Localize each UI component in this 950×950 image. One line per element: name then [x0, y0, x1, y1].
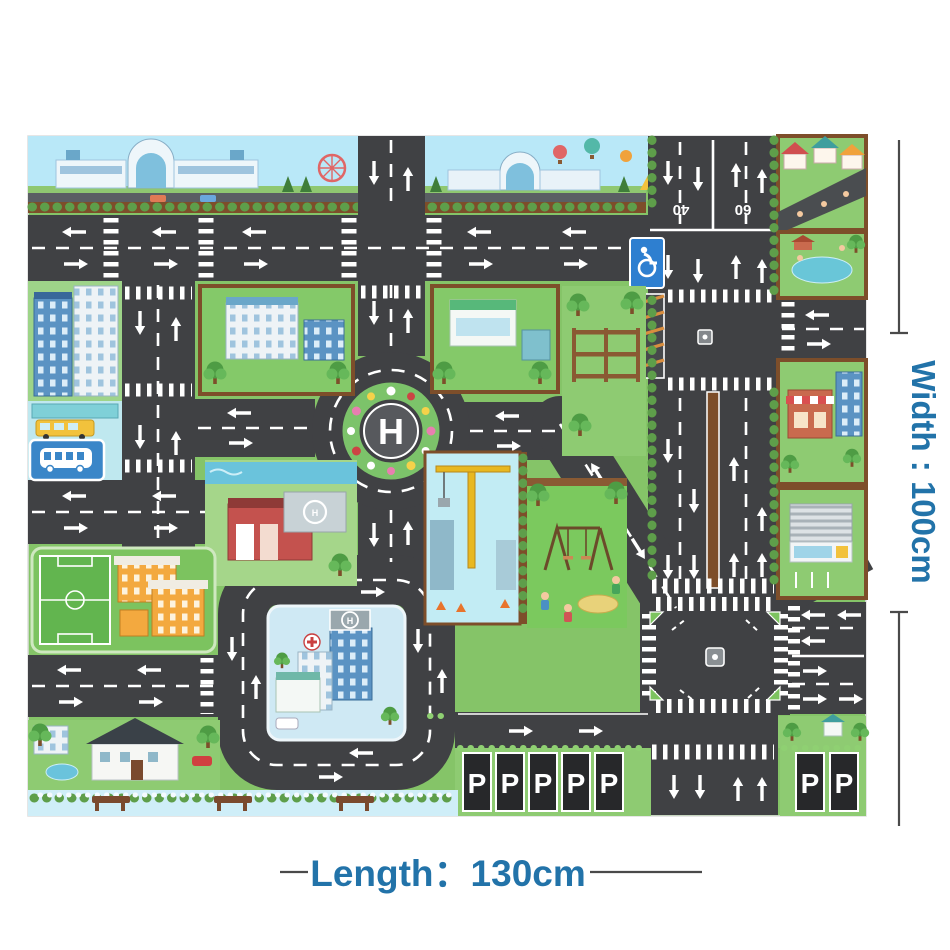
- swimming-pool: [46, 764, 78, 780]
- pond-park-block: [778, 232, 866, 298]
- office-building: [226, 303, 298, 359]
- construction-site: [425, 452, 520, 624]
- width-dimension: Width : 100cm: [890, 140, 942, 826]
- shopping-street-block: [778, 360, 866, 484]
- city-block-upper-mid: [200, 286, 353, 394]
- red-car: [192, 756, 212, 766]
- bus-stop-sign: [30, 440, 104, 480]
- width-label: Width : 100cm: [905, 360, 942, 583]
- product-image: 40 60: [0, 0, 950, 950]
- playground: [527, 478, 628, 628]
- parking-row-left: P P P P P: [455, 748, 651, 816]
- hospital-helipad-label: H: [347, 616, 354, 626]
- store-block: [432, 286, 558, 392]
- length-label: Length：130cm: [310, 853, 586, 894]
- office-buildings-block: [28, 281, 122, 401]
- play-mat-scene: 40 60: [0, 0, 950, 950]
- parking-letter: P: [801, 768, 820, 799]
- hospital-tower: [330, 628, 372, 700]
- houses-row-block: [778, 136, 866, 234]
- fire-station-helipad-label: H: [312, 508, 319, 518]
- hot-air-balloon-icon: [620, 150, 632, 162]
- play-mat: 40 60: [28, 136, 869, 816]
- school-block: [32, 548, 215, 652]
- parking-letter: P: [835, 768, 854, 799]
- parking-stall: P: [529, 753, 557, 811]
- corner-green-block: [778, 714, 869, 748]
- parking-letter: P: [501, 768, 520, 799]
- parking-stall: P: [463, 753, 491, 811]
- speed-limit-60: 60: [735, 201, 752, 218]
- supermarket-building: [790, 504, 852, 562]
- hospital-block: H: [268, 606, 405, 740]
- soccer-field: [40, 556, 110, 644]
- red-cross-icon: [304, 634, 320, 650]
- length-dimension: Length：130cm: [280, 853, 702, 894]
- parking-stall: P: [595, 753, 623, 811]
- fire-station-block: H: [205, 460, 357, 586]
- parking-letter: P: [600, 768, 619, 799]
- sandbox: [578, 595, 618, 613]
- parking-letter: P: [468, 768, 487, 799]
- parking-letter: P: [534, 768, 553, 799]
- parking-stall: P: [562, 753, 590, 811]
- parking-row-right: P P: [780, 748, 866, 816]
- hot-air-balloon-icon: [584, 138, 600, 154]
- bench-strip: [28, 790, 458, 816]
- road-median: [707, 392, 719, 588]
- modern-building-block: [778, 488, 866, 598]
- bus-vehicle: [150, 195, 166, 202]
- police-station: [304, 320, 344, 360]
- parking-letter: P: [567, 768, 586, 799]
- speed-limit-40: 40: [673, 201, 690, 218]
- roundabout-helipad-label: H: [378, 411, 404, 452]
- handicap-parking-sign: [630, 238, 664, 288]
- parking-stall: P: [496, 753, 524, 811]
- paddock-block: [562, 286, 646, 456]
- hot-air-balloon-icon: [553, 145, 567, 159]
- ambulance: [276, 718, 298, 729]
- parking-stall: P: [830, 753, 858, 811]
- parking-stall: P: [796, 753, 824, 811]
- mansion-block: [28, 718, 220, 790]
- cyclist-figures: [797, 211, 803, 217]
- parking-access-road: [455, 712, 651, 748]
